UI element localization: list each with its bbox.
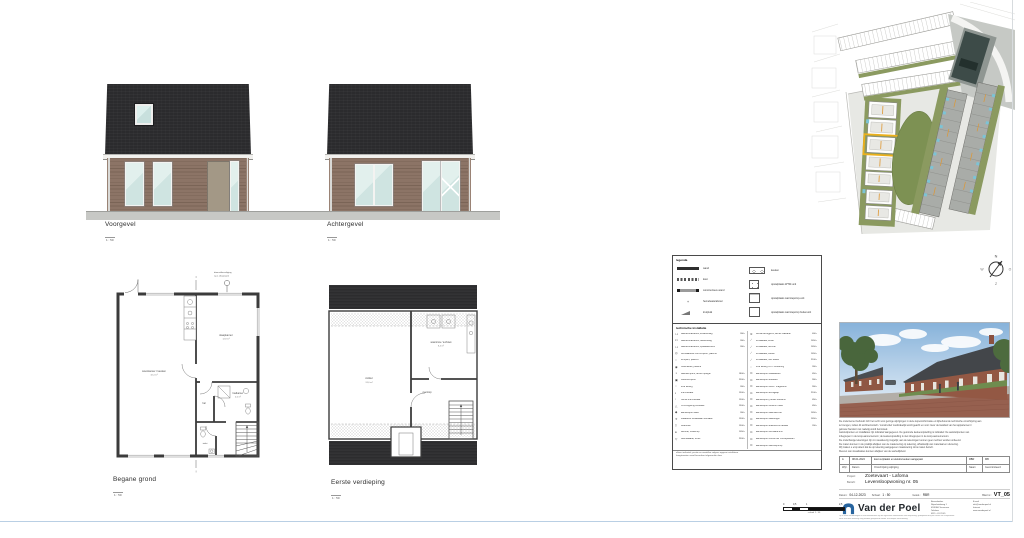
svg-text:I: I [196,470,197,474]
legend-row: opstelplaats WTW-unit [747,277,819,291]
sheet-frame-right [1012,0,1013,522]
datum-value: 04-12-2023 [849,493,865,497]
legend-row: + hemelwaterafvoer [675,296,747,307]
svg-text:12,8 m²: 12,8 m² [222,338,229,341]
roof [327,84,473,155]
svg-text:badkamer: badkamer [233,392,244,395]
legend-row: keuken [747,263,819,277]
titleblock: Project: Zoetevaart - Lafoma Betreft: Le… [839,472,1010,498]
window [125,162,144,206]
disclaimer-line: Kleuren van visualisaties kunnen afwijke… [839,450,1010,454]
legend-row: kruipluik [675,307,747,318]
legend-label: hemelwaterafvoer [703,300,723,303]
project-name: Zoetevaart - Lafoma [865,474,908,479]
door-sidelight [230,161,239,213]
drawing-title: Begane grond [113,476,156,483]
company-contact-left: BezoekadresNijverheidsweg 14538 AX Terne… [931,501,949,516]
company-name: Van der Poel [858,503,920,514]
svg-text:Z: Z [995,282,997,286]
wall [107,158,249,211]
blad-number: VT_05 [994,492,1010,498]
car [885,380,896,385]
legend-label: keuken [771,269,779,272]
svg-text:4,6 m²: 4,6 m² [235,395,241,398]
schaal-label: Schaal: [872,494,881,497]
legend-symbol-icon: + [677,300,699,304]
legend-label: kast [703,278,708,281]
svg-text:zolder: zolder [365,376,373,380]
entrance-opening [124,292,138,296]
legend-row: wand [675,263,747,274]
wall [329,158,471,211]
legend-symbol-icon [677,267,699,270]
getekend-value: RBR [923,493,930,497]
svg-text:32,4 m²: 32,4 m² [150,374,157,377]
downpipe [330,158,332,211]
legend-install-right: ≋ ventiel afzuigpunt, achter wastafel 40… [747,331,819,449]
downpipe [108,158,110,211]
legend-general-right: keuken opstelplaats WTW-unit opstelplaat… [747,263,819,321]
svg-text:overloop: overloop [422,391,432,394]
front-door [207,161,230,213]
legend-symbol-icon [681,311,690,315]
legend-symbol-icon [749,267,765,274]
dormer [391,427,421,457]
plan-note: doorvalbeveiliging [214,271,232,274]
revision-row: A 08-01-2024 kast verplaatst en elektra … [840,457,1009,464]
graphic-scale-bar: 0 0,5 1 2,5 schaal 1 : 50 [783,503,845,514]
north-arrow-icon: N O Z W [976,250,1016,288]
svg-text:t.p.v. draairaam: t.p.v. draairaam [214,274,229,277]
legend-general-left: wand kast constructieve wand + hemelwate… [675,263,747,321]
svg-text:hal: hal [202,402,206,405]
voorgevel-caption: Voorgevel 1 : 50 [105,221,136,246]
company-footer: Op al onze aanbiedingen en overeenkomste… [839,515,1010,520]
company-contact-right: E-mailinfo@vanderpoel.nlInternetwww.vand… [973,501,991,513]
company-block: Van der Poel BezoekadresNijverheidsweg 1… [839,498,1010,521]
window [153,162,172,206]
begane-grond-plan: doorvalbeveiliging t.p.v. draairaam I I [96,264,276,474]
svg-text:slaapkamer: slaapkamer [219,333,233,337]
legend-install-left: ⊶ wandcontactdoos, enkelvoudig 300+ ⊷ wa… [675,331,747,449]
project-label: Project: [839,475,865,478]
drawing-scale: 1 : 50 [327,237,337,243]
downpipe [469,158,471,211]
drawing-title: Achtergevel [327,221,364,228]
legend-row: constructieve wand [675,285,747,296]
company-logo: Van der Poel [841,502,920,515]
getekend-label: Getek.: [912,494,920,497]
drawing-scale: 1 : 50 [331,495,341,501]
legend-label: wand [703,267,709,270]
skylight-window [135,104,153,125]
achtergevel-elevation [327,84,473,211]
kitchen-counter [184,296,196,340]
legend-symbol-icon [749,293,760,303]
terrace-door [441,161,460,213]
legend-label: opstelplaats WTW-unit [771,283,796,286]
legend-label: opstelplaats warmtepomp-unit [771,297,804,300]
voorgevel-elevation [105,84,251,211]
legend-symbol-icon [749,280,759,289]
legend-row: kast [675,274,747,285]
legend-label: constructieve wand [703,289,724,292]
drawing-title: Voorgevel [105,221,136,228]
downpipe [247,158,249,211]
legend-symbol-icon [677,278,699,281]
svg-text:woonkamer / keuken: woonkamer / keuken [142,369,166,373]
svg-text:wasruimte / techniek: wasruimte / techniek [431,341,453,344]
svg-text:8,4 m²: 8,4 m² [438,345,444,348]
window-pair [355,164,393,206]
ground-line [86,211,500,220]
drawing-scale: 1 : 50 [113,492,123,498]
legend-symbol-icon [749,307,760,317]
svg-text:toilet: toilet [203,442,208,445]
datum-label: Datum: [839,494,847,497]
scale-bar [783,507,845,512]
project-render-image [839,322,1010,418]
disclaimer-text: De ondernemer behoudt zich het recht voo… [839,420,1010,454]
revision-header-row: Wijz. Datum Omschrijving wijziging Naam … [840,464,1009,472]
eerste-verdieping-plan: zolder 24,6 m² wasruimte / techniek 8,4 … [319,281,489,471]
entrance-door-swing [125,280,138,293]
floor-outline [329,311,477,439]
legend-row: ⊙ aansluitpunt warmtepomp [750,442,817,449]
svg-text:W: W [980,268,984,272]
roof [105,84,251,155]
schaal-value: 1 : 50 [882,493,890,497]
begane-grond-caption: Begane grond 1 : 50 [113,476,156,501]
svg-text:I: I [196,275,197,279]
legend-notes: alleen indicatief; positie en aantallen … [673,450,821,459]
eerste-verdieping-caption: Eerste verdieping 1 : 50 [331,479,385,504]
note-marker-icon [224,280,229,285]
drawing-title: Eerste verdieping [331,479,385,486]
achtergevel-caption: Achtergevel 1 : 50 [327,221,364,246]
legend-symbol-icon [677,289,699,291]
legend-note-line: hoogtematen vanaf bovenkant afgewerkte v… [676,455,818,458]
drawing-scale: 1 : 50 [105,237,115,243]
svg-text:24,6 m²: 24,6 m² [365,381,372,384]
legend-row: opstelplaats warmtepomp buitenunit [747,305,819,319]
betreft-value: Levensloopwoning nr. 05 [865,480,918,485]
blad-label: Blad nr.: [982,494,992,497]
site-plan [810,2,1015,238]
sheet-frame-bottom [0,521,1013,522]
scale-caption: schaal 1 : 50 [783,512,845,514]
terrace-door-glass [422,161,441,213]
betreft-label: Betreft: [839,481,865,484]
legend-label: kruipluik [703,311,712,314]
legend-box: legenda wand kast constructieve wand + h… [672,255,822,470]
legend-row: opstelplaats warmtepomp-unit [747,291,819,305]
drawing-sheet: Voorgevel 1 : 50 Achtergevel 1 : 50 door… [0,0,1024,538]
revision-table: A 08-01-2024 kast verplaatst en elektra … [839,456,1010,473]
svg-text:N: N [995,255,998,259]
legend-label: opstelplaats warmtepomp buitenunit [771,311,811,314]
legend-row: ▽ belinstallatie, schel 2300+ [675,436,745,443]
